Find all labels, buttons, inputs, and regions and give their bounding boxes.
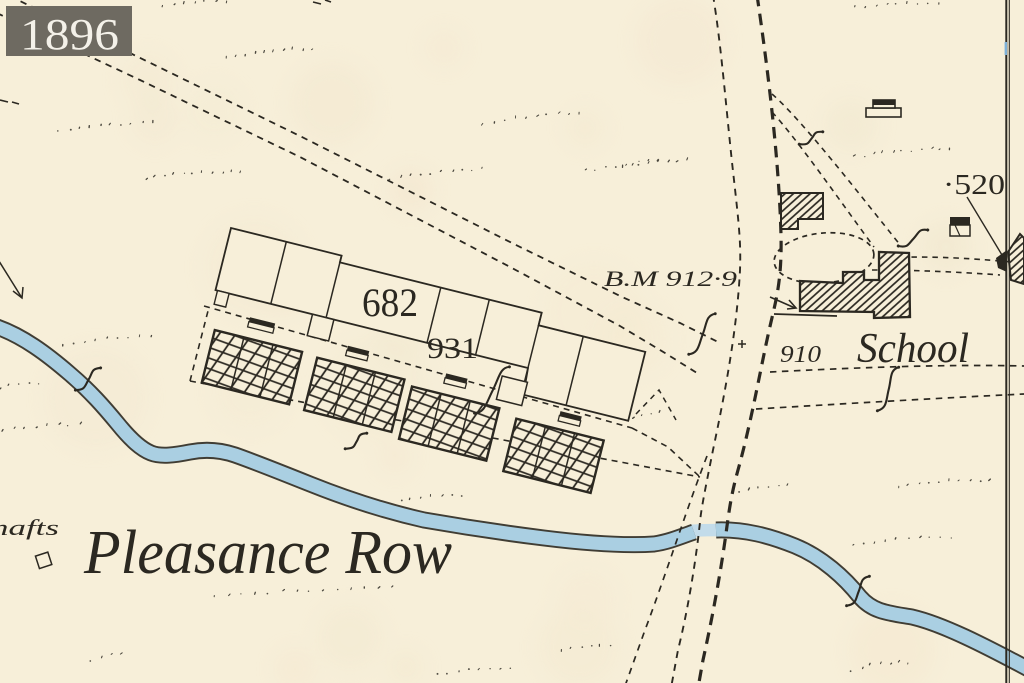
svg-text:682: 682 [362,280,418,325]
svg-text:hafts: hafts [0,515,59,540]
svg-text:910: 910 [780,342,821,368]
svg-text:931: 931 [427,332,478,365]
svg-text:Pleasance Row: Pleasance Row [83,519,452,587]
svg-text:B.M 912·9: B.M 912·9 [604,266,737,291]
svg-text:1896: 1896 [20,10,119,59]
svg-text:School: School [857,326,969,372]
svg-text:·520: ·520 [943,169,1005,201]
